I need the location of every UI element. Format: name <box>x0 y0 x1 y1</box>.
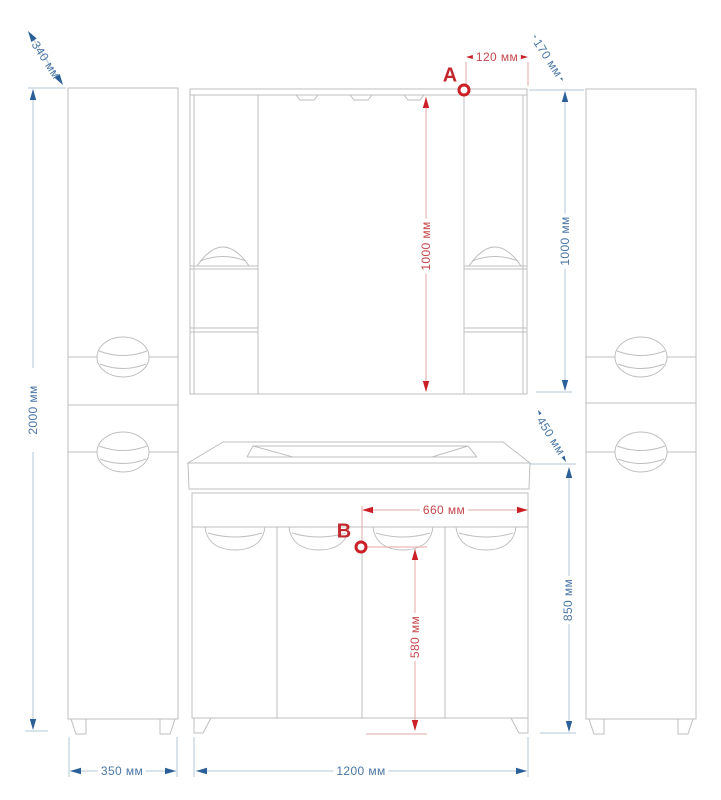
dimension-label-point-b-height: 580 мм <box>408 613 422 661</box>
cabinet-leg <box>511 718 528 733</box>
furniture-outlines <box>68 88 696 734</box>
dimension-label-vanity-height: 850 мм <box>561 576 575 624</box>
cabinet-leg <box>678 719 693 734</box>
dimension-label-point-b-offset: 660 мм <box>420 503 468 517</box>
furniture-dimension-diagram: 340 мм 2000 мм 350 мм 1200 мм 170 мм 100… <box>0 0 721 800</box>
cabinet-leg <box>589 719 604 734</box>
mirror-cabinet <box>190 89 527 394</box>
counter-top <box>188 442 530 463</box>
cabinet-leg <box>160 719 175 734</box>
vanity-with-basin <box>188 442 530 733</box>
door-handle <box>615 337 667 377</box>
dimension-label-cabinet-width: 350 мм <box>98 764 146 778</box>
point-a-label: A <box>443 65 457 88</box>
diagram-drawing <box>0 0 721 800</box>
door-handle <box>97 432 149 472</box>
dimension-label-mirror-height-center: 1000 мм <box>419 218 433 273</box>
door-handle <box>615 432 667 472</box>
dimension-label-vanity-width: 1200 мм <box>333 764 388 778</box>
dimension-label-point-a-offset: 120 мм <box>473 50 521 64</box>
cabinet-leg <box>71 719 86 734</box>
counter-front <box>188 463 530 489</box>
right-tall-cabinet <box>586 89 696 734</box>
door-handle <box>97 337 149 377</box>
point-a-marker <box>459 85 469 95</box>
point-b-label: B <box>337 521 351 544</box>
point-b-marker <box>356 542 366 552</box>
dimension-label-cabinet-height: 2000 мм <box>26 382 40 437</box>
cabinet-leg <box>194 718 211 733</box>
dimension-label-mirror-height-side: 1000 мм <box>558 213 572 268</box>
left-tall-cabinet <box>68 88 178 734</box>
